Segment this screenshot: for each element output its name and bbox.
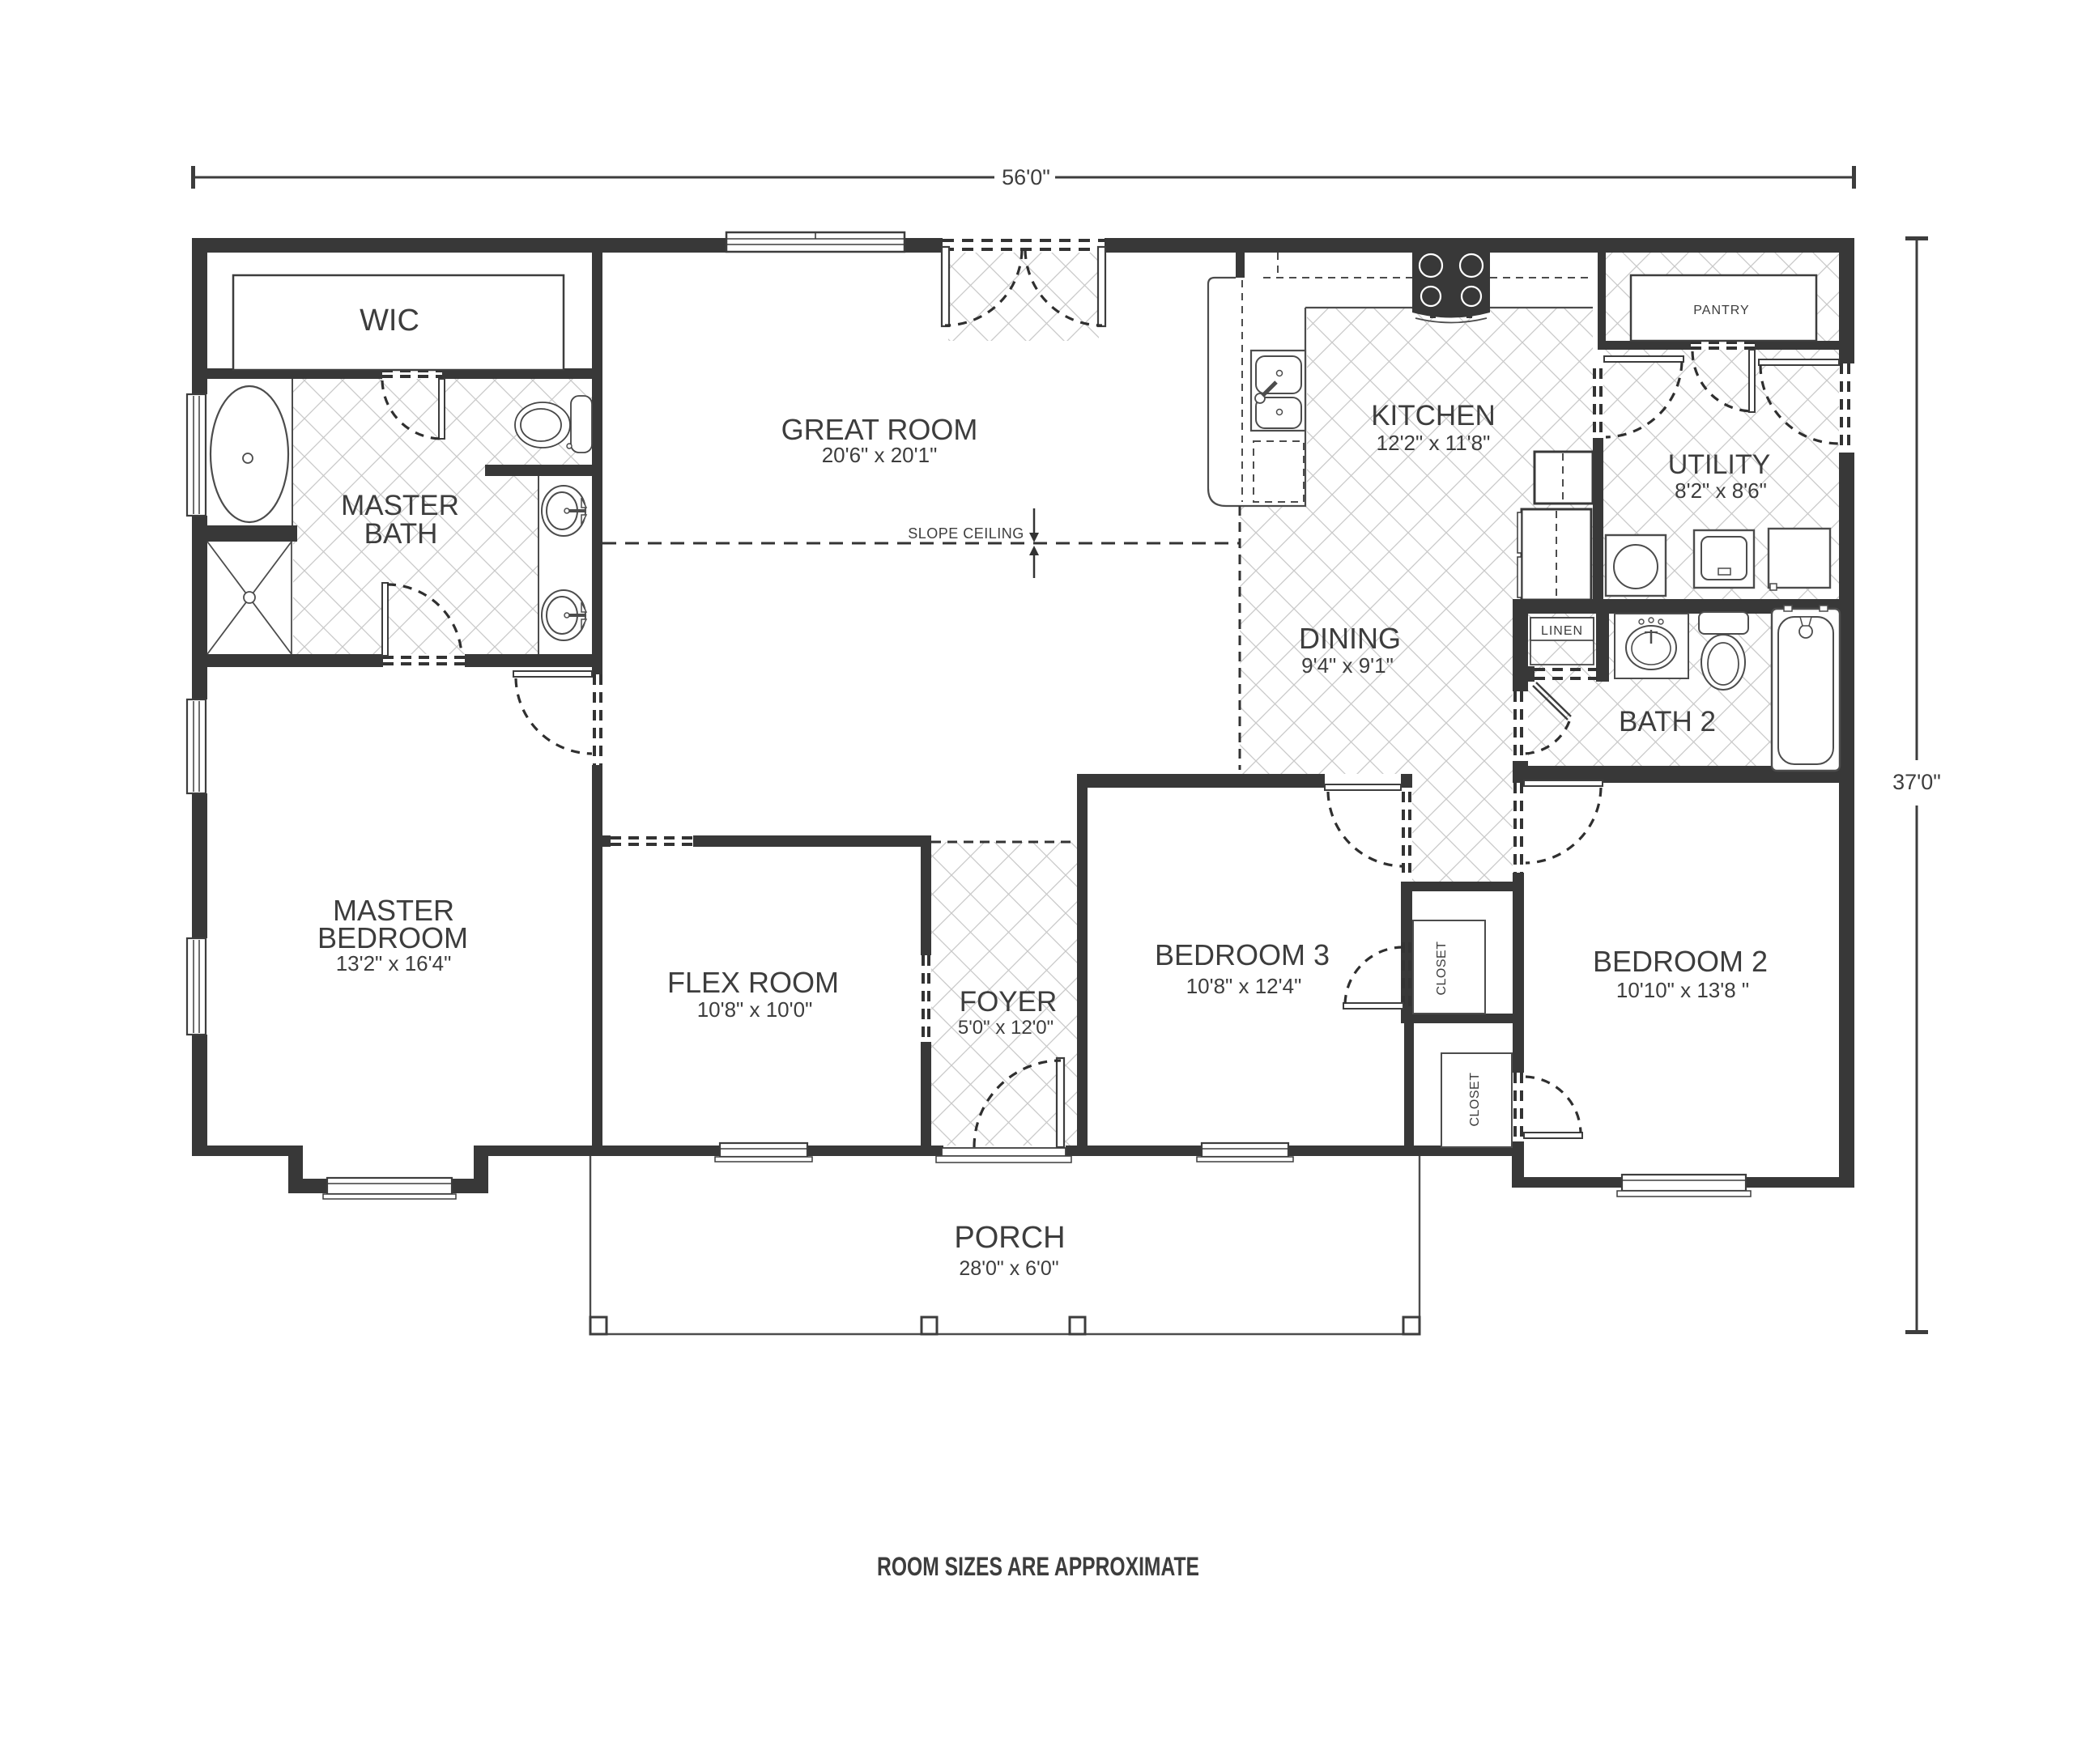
- svg-text:MASTER: MASTER: [341, 490, 459, 521]
- svg-text:UTILITY: UTILITY: [1668, 449, 1771, 480]
- svg-text:BATH 2: BATH 2: [1619, 706, 1716, 737]
- svg-text:DINING: DINING: [1299, 622, 1401, 655]
- svg-text:BEDROOM: BEDROOM: [317, 921, 468, 954]
- svg-text:28'0" x 6'0": 28'0" x 6'0": [959, 1257, 1058, 1280]
- svg-text:10'10" x 13'8 ": 10'10" x 13'8 ": [1616, 978, 1749, 1002]
- svg-text:20'6" x 20'1": 20'6" x 20'1": [822, 443, 938, 467]
- svg-text:12'2" x 11'8": 12'2" x 11'8": [1377, 431, 1491, 455]
- svg-text:ROOM SIZES ARE APPROXIMATE: ROOM SIZES ARE APPROXIMATE: [877, 1552, 1199, 1581]
- svg-text:FOYER: FOYER: [960, 986, 1058, 1018]
- svg-text:5'0" x 12'0": 5'0" x 12'0": [958, 1017, 1054, 1039]
- svg-text:PORCH: PORCH: [954, 1221, 1065, 1255]
- svg-text:CLOSET: CLOSET: [1435, 941, 1449, 995]
- svg-text:10'8" x 10'0": 10'8" x 10'0": [697, 997, 813, 1022]
- svg-text:56'0": 56'0": [1002, 165, 1050, 189]
- svg-text:13'2" x 16'4": 13'2" x 16'4": [336, 951, 452, 976]
- svg-text:37'0": 37'0": [1892, 770, 1941, 794]
- svg-text:BEDROOM 2: BEDROOM 2: [1593, 945, 1768, 978]
- svg-text:9'4" x 9'1": 9'4" x 9'1": [1301, 653, 1394, 678]
- svg-text:PANTRY: PANTRY: [1693, 304, 1749, 317]
- svg-text:LINEN: LINEN: [1541, 624, 1583, 638]
- svg-text:WIC: WIC: [360, 304, 419, 338]
- svg-text:KITCHEN: KITCHEN: [1371, 400, 1496, 431]
- svg-text:SLOPE CEILING: SLOPE CEILING: [908, 525, 1024, 542]
- svg-text:FLEX ROOM: FLEX ROOM: [667, 966, 839, 999]
- svg-text:GREAT ROOM: GREAT ROOM: [781, 413, 978, 446]
- svg-text:BEDROOM 3: BEDROOM 3: [1155, 938, 1330, 971]
- svg-text:8'2" x 8'6": 8'2" x 8'6": [1675, 478, 1767, 503]
- svg-text:CLOSET: CLOSET: [1468, 1072, 1482, 1126]
- svg-text:10'8" x 12'4": 10'8" x 12'4": [1186, 974, 1302, 998]
- svg-text:BATH: BATH: [364, 518, 438, 550]
